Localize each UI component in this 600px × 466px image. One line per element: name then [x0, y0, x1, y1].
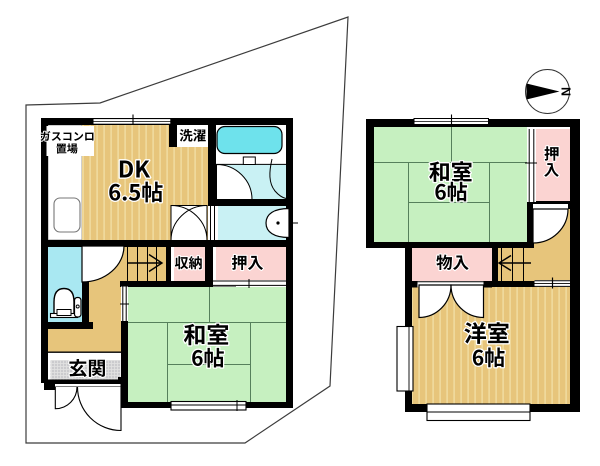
svg-text:N: N	[559, 87, 573, 96]
